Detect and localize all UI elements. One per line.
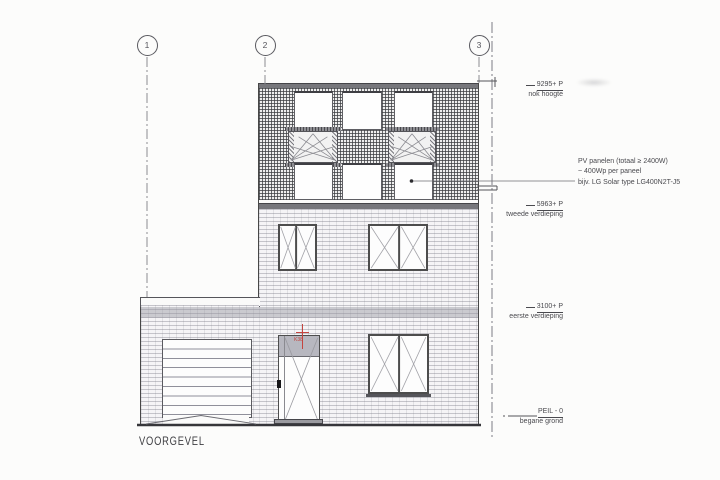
window-opening-symbol xyxy=(289,132,337,162)
level-value-row: PEIL - 0 xyxy=(493,408,563,418)
window-sill xyxy=(366,394,431,397)
level-eerste-verdieping: 3100+ P eerste verdieping xyxy=(493,301,563,322)
pv-panel xyxy=(394,91,433,130)
grid-marker-2-number: 2 xyxy=(263,40,268,50)
door-handle xyxy=(277,380,281,388)
level-value-row: 9295+ P xyxy=(493,79,563,91)
level-value: PEIL - 0 xyxy=(538,408,563,418)
level-dash xyxy=(526,79,535,86)
pv-note: PV panelen (totaal ≥ 2400W) ~ 400Wp per … xyxy=(578,157,680,188)
pv-note-line1: PV panelen (totaal ≥ 2400W) xyxy=(578,157,680,167)
pv-note-line3: bijv. LG Solar type LG400N2T-J5 xyxy=(578,178,680,188)
level-nok: 9295+ P nok hoogte xyxy=(493,79,563,100)
level-value: 3100+ P xyxy=(537,303,563,313)
pv-panel xyxy=(342,163,382,200)
garage-concrete-band xyxy=(141,307,259,318)
pv-panel xyxy=(294,163,333,200)
elevation-drawing: K38 1 2 3 9295+ P nok hoogte 5963+ P twe… xyxy=(0,0,720,480)
level-value-row: 5963+ P xyxy=(493,199,563,211)
grid-marker-2: 2 xyxy=(255,35,276,56)
level-value: 9295+ P xyxy=(537,81,563,91)
scan-smudge xyxy=(571,77,617,88)
door-threshold xyxy=(274,419,323,424)
drawing-title: VOORGEVEL xyxy=(139,434,205,448)
pv-note-line2: ~ 400Wp per paneel xyxy=(578,167,680,177)
window-pane-diagonals xyxy=(280,226,315,269)
grid-marker-1: 1 xyxy=(137,35,158,56)
pv-panel xyxy=(394,163,433,200)
eave-edge-detail xyxy=(477,186,497,190)
level-value: 5963+ P xyxy=(537,201,563,211)
level-name: eerste verdieping xyxy=(493,313,563,322)
window-ground-floor xyxy=(368,334,429,394)
pv-panel xyxy=(294,91,333,130)
garage-door xyxy=(162,339,252,418)
level-name: nok hoogte xyxy=(493,91,563,100)
pv-panel xyxy=(342,91,382,130)
grid-marker-3: 3 xyxy=(469,35,490,56)
level-name: begane grond xyxy=(493,418,563,427)
grid-marker-1-number: 1 xyxy=(145,40,150,50)
front-door xyxy=(278,335,320,423)
door-frame-tag: K38 xyxy=(294,338,303,343)
concrete-band xyxy=(259,307,478,318)
window-pane-diagonals xyxy=(370,226,426,269)
level-dash xyxy=(526,199,535,206)
level-name: tweede verdieping xyxy=(493,211,563,220)
window-first-floor-left xyxy=(278,224,317,271)
window-pane-diagonals xyxy=(370,336,427,392)
grid-marker-3-number: 3 xyxy=(477,40,482,50)
level-value-row: 3100+ P xyxy=(493,301,563,313)
roof-window xyxy=(388,131,436,163)
window-first-floor-right xyxy=(368,224,428,271)
level-dash xyxy=(526,301,535,308)
roof-window xyxy=(288,131,338,163)
door-leaf-diagonals xyxy=(279,336,319,422)
red-annotation-tick xyxy=(296,332,309,333)
garage-driveway-apron xyxy=(163,416,249,424)
level-tweede-verdieping: 5963+ P tweede verdieping xyxy=(493,199,563,220)
level-peil: PEIL - 0 begane grond xyxy=(493,408,563,427)
window-opening-symbol xyxy=(389,132,435,162)
